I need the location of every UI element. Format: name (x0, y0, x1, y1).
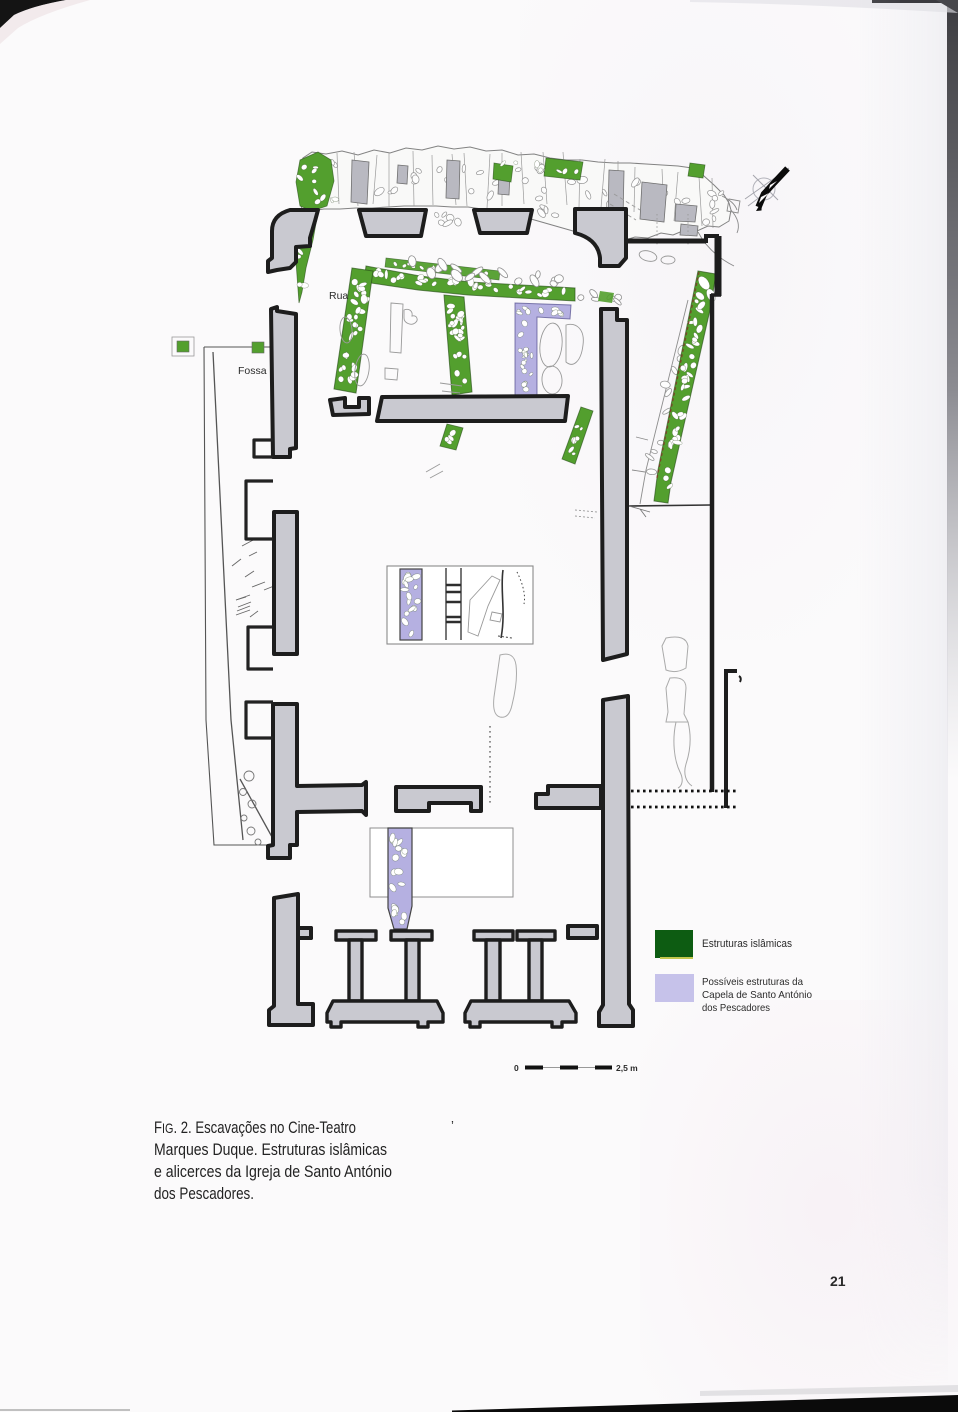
svg-text:Marques Duque. Estruturas islâ: Marques Duque. Estruturas islâmicas (154, 1140, 387, 1159)
svg-text:dos Pescadores.: dos Pescadores. (154, 1184, 254, 1203)
svg-text:21: 21 (830, 1273, 846, 1289)
svg-text:Rua: Rua (329, 290, 348, 302)
svg-text:’: ’ (451, 1118, 454, 1133)
svg-text:dos Pescadores: dos Pescadores (702, 1002, 770, 1014)
svg-text:0: 0 (514, 1063, 519, 1073)
svg-text:Possíveis estruturas da: Possíveis estruturas da (702, 976, 803, 988)
svg-text:Capela de Santo António: Capela de Santo António (702, 989, 812, 1001)
svg-text:Fossa: Fossa (238, 365, 267, 377)
svg-text:FIG. 2. Escavações no Cine-Tea: FIG. 2. Escavações no Cine-Teatro (154, 1118, 356, 1137)
svg-text:Estruturas islâmicas: Estruturas islâmicas (702, 938, 792, 950)
svg-text:2,5 m: 2,5 m (616, 1063, 638, 1073)
svg-text:e alicerces da Igreja de Santo: e alicerces da Igreja de Santo António (154, 1162, 392, 1181)
